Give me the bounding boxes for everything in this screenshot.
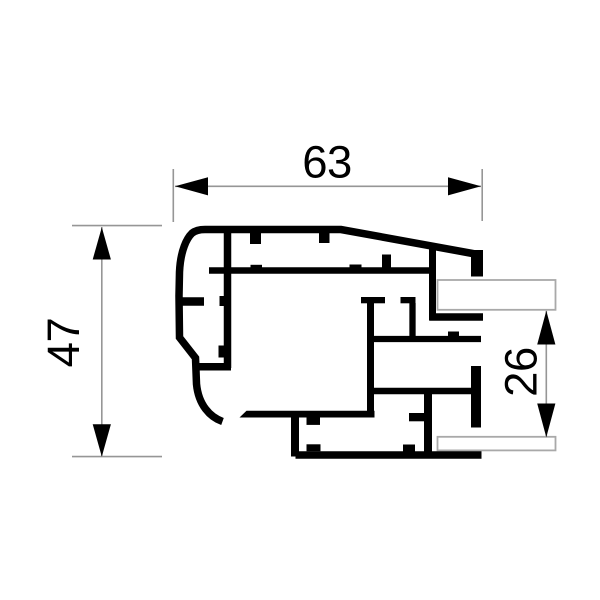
svg-text:63: 63 (302, 137, 352, 188)
svg-text:47: 47 (38, 318, 89, 368)
svg-text:26: 26 (496, 347, 547, 397)
